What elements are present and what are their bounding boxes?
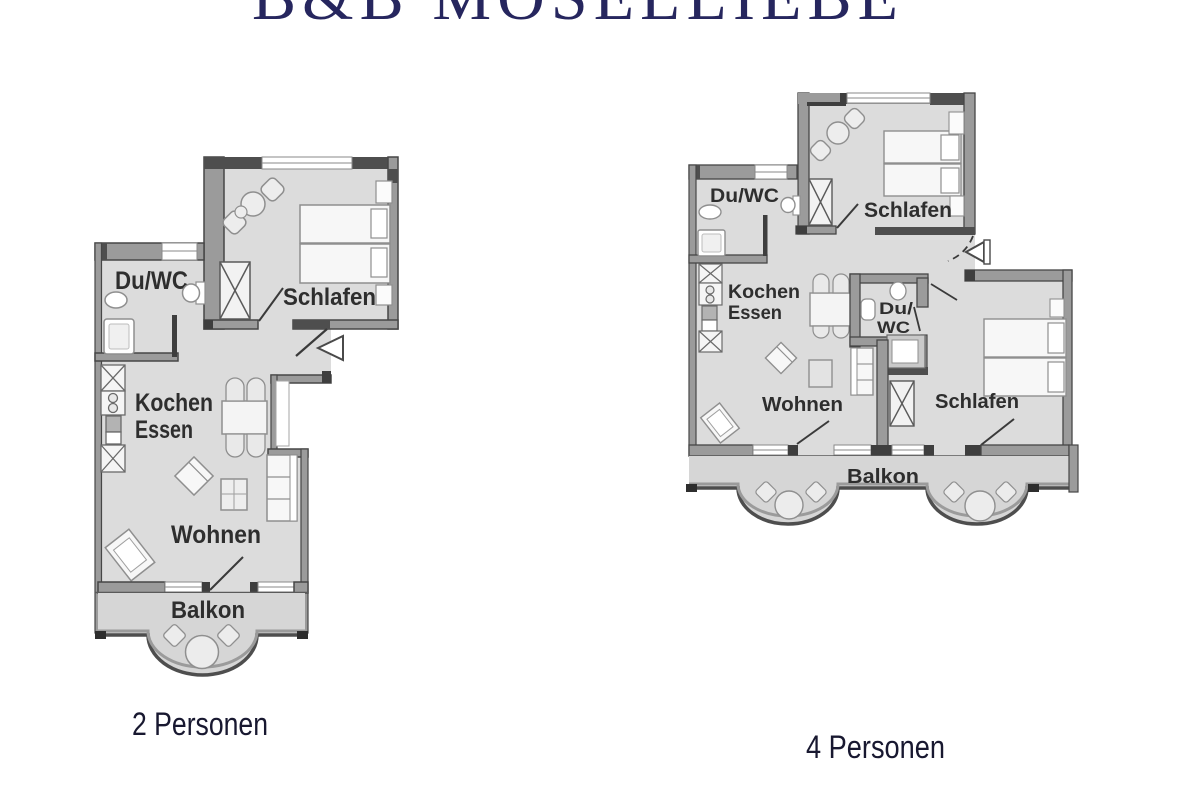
svg-text:2 Personen: 2 Personen xyxy=(132,706,268,742)
svg-text:4 Personen: 4 Personen xyxy=(806,729,945,765)
svg-text:WC: WC xyxy=(877,318,910,337)
svg-text:Kochen: Kochen xyxy=(135,389,213,417)
svg-text:B&B MOSELLIEBE: B&B MOSELLIEBE xyxy=(252,0,898,34)
svg-text:Du/WC: Du/WC xyxy=(710,186,779,207)
svg-text:Wohnen: Wohnen xyxy=(171,521,261,549)
svg-text:Kochen: Kochen xyxy=(728,282,800,303)
svg-text:Du/: Du/ xyxy=(879,299,913,318)
svg-text:Schlafen: Schlafen xyxy=(935,391,1019,413)
svg-text:Balkon: Balkon xyxy=(171,597,245,624)
svg-text:Essen: Essen xyxy=(135,416,193,444)
svg-text:Balkon: Balkon xyxy=(847,466,919,488)
svg-text:Essen: Essen xyxy=(728,303,782,324)
svg-text:Wohnen: Wohnen xyxy=(762,394,843,416)
svg-text:Schlafen: Schlafen xyxy=(864,199,952,222)
svg-text:Du/WC: Du/WC xyxy=(115,267,188,295)
svg-text:Schlafen: Schlafen xyxy=(283,284,376,311)
